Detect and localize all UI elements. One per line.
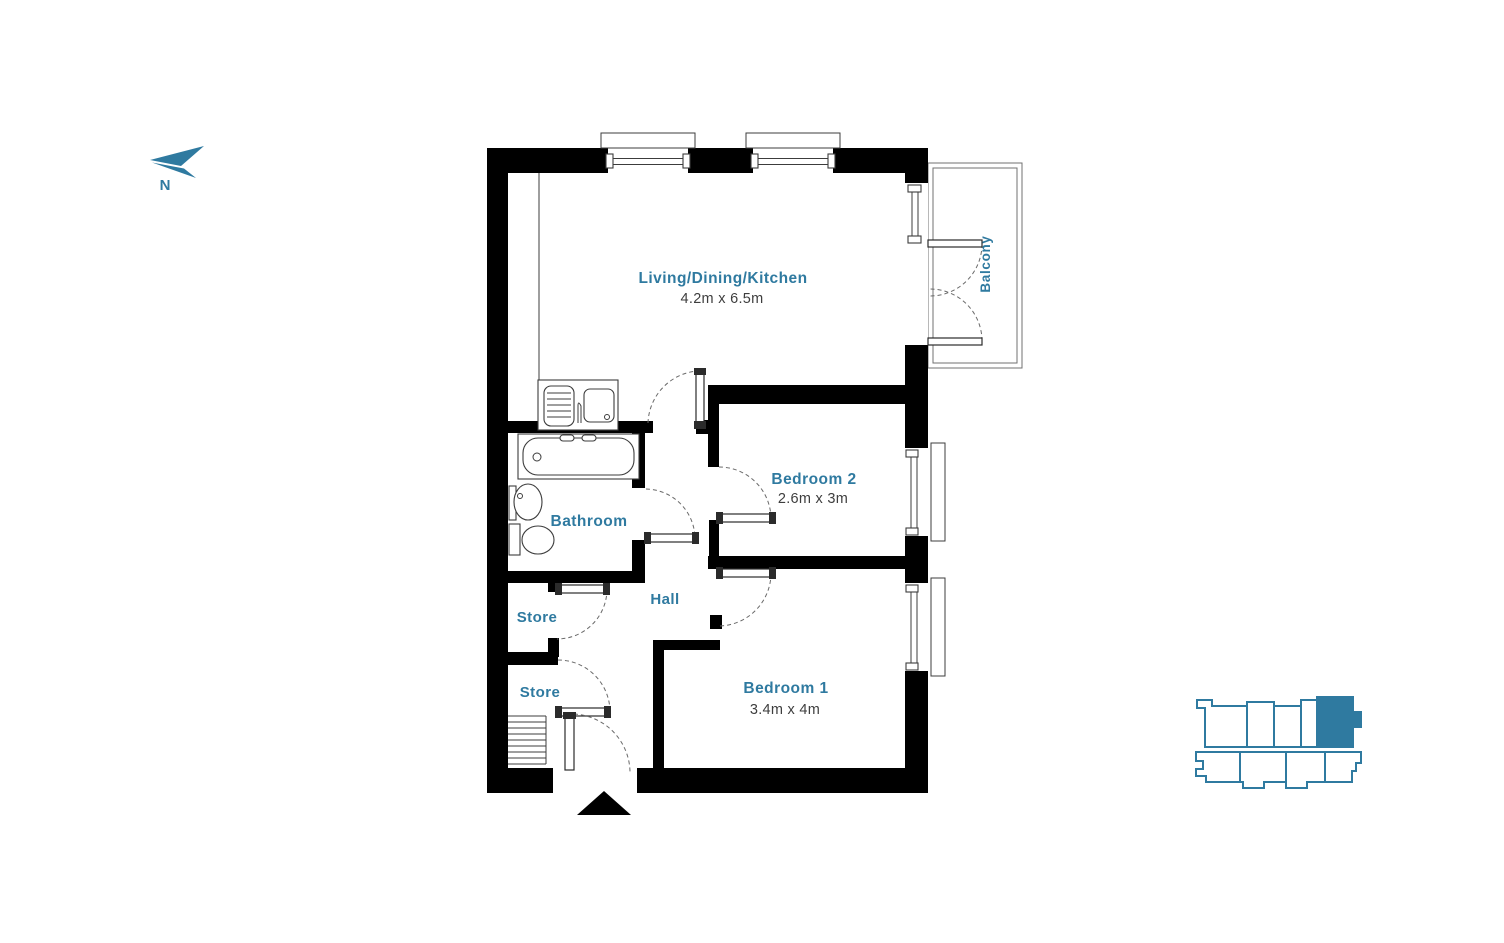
bedroom1-dimensions: 3.4m x 4m xyxy=(750,702,820,718)
store-lower-door xyxy=(555,660,611,718)
bathtub-icon xyxy=(518,434,639,479)
window-opening xyxy=(608,148,688,173)
balcony-door-opening xyxy=(905,183,928,345)
entrance-door xyxy=(563,712,630,772)
bathroom-door xyxy=(644,489,699,544)
stairs-hatch xyxy=(508,716,546,764)
balcony-outline xyxy=(928,163,1022,368)
living-room-label: Living/Dining/Kitchen xyxy=(638,270,807,287)
washbasin-icon xyxy=(509,484,542,520)
balcony-french-doors xyxy=(928,240,982,345)
bathroom-label: Bathroom xyxy=(551,513,628,530)
kitchen-sink-icon xyxy=(538,380,618,430)
toilet-icon xyxy=(509,524,554,555)
living-room-dimensions: 4.2m x 6.5m xyxy=(681,291,764,307)
store-upper-door xyxy=(555,583,610,639)
bedroom2-label: Bedroom 2 xyxy=(771,471,856,488)
bedroom1-label: Bedroom 1 xyxy=(743,680,828,697)
store-lower-label: Store xyxy=(520,684,561,701)
bedroom2-door xyxy=(716,467,776,524)
entrance-opening xyxy=(553,768,637,793)
living-room-door xyxy=(648,368,706,429)
window-opening xyxy=(753,148,833,173)
bedroom1-door xyxy=(716,567,776,626)
entrance-marker-icon xyxy=(577,791,631,815)
building-key-plan xyxy=(1196,697,1361,788)
north-label: N xyxy=(160,177,171,194)
balcony-label: Balcony xyxy=(978,235,993,292)
hall-label: Hall xyxy=(650,591,679,608)
bedroom2-dimensions: 2.6m x 3m xyxy=(778,491,848,507)
store-upper-label: Store xyxy=(517,609,558,626)
floorplan-canvas: N xyxy=(0,0,1504,943)
north-arrow-icon: N xyxy=(150,146,204,194)
